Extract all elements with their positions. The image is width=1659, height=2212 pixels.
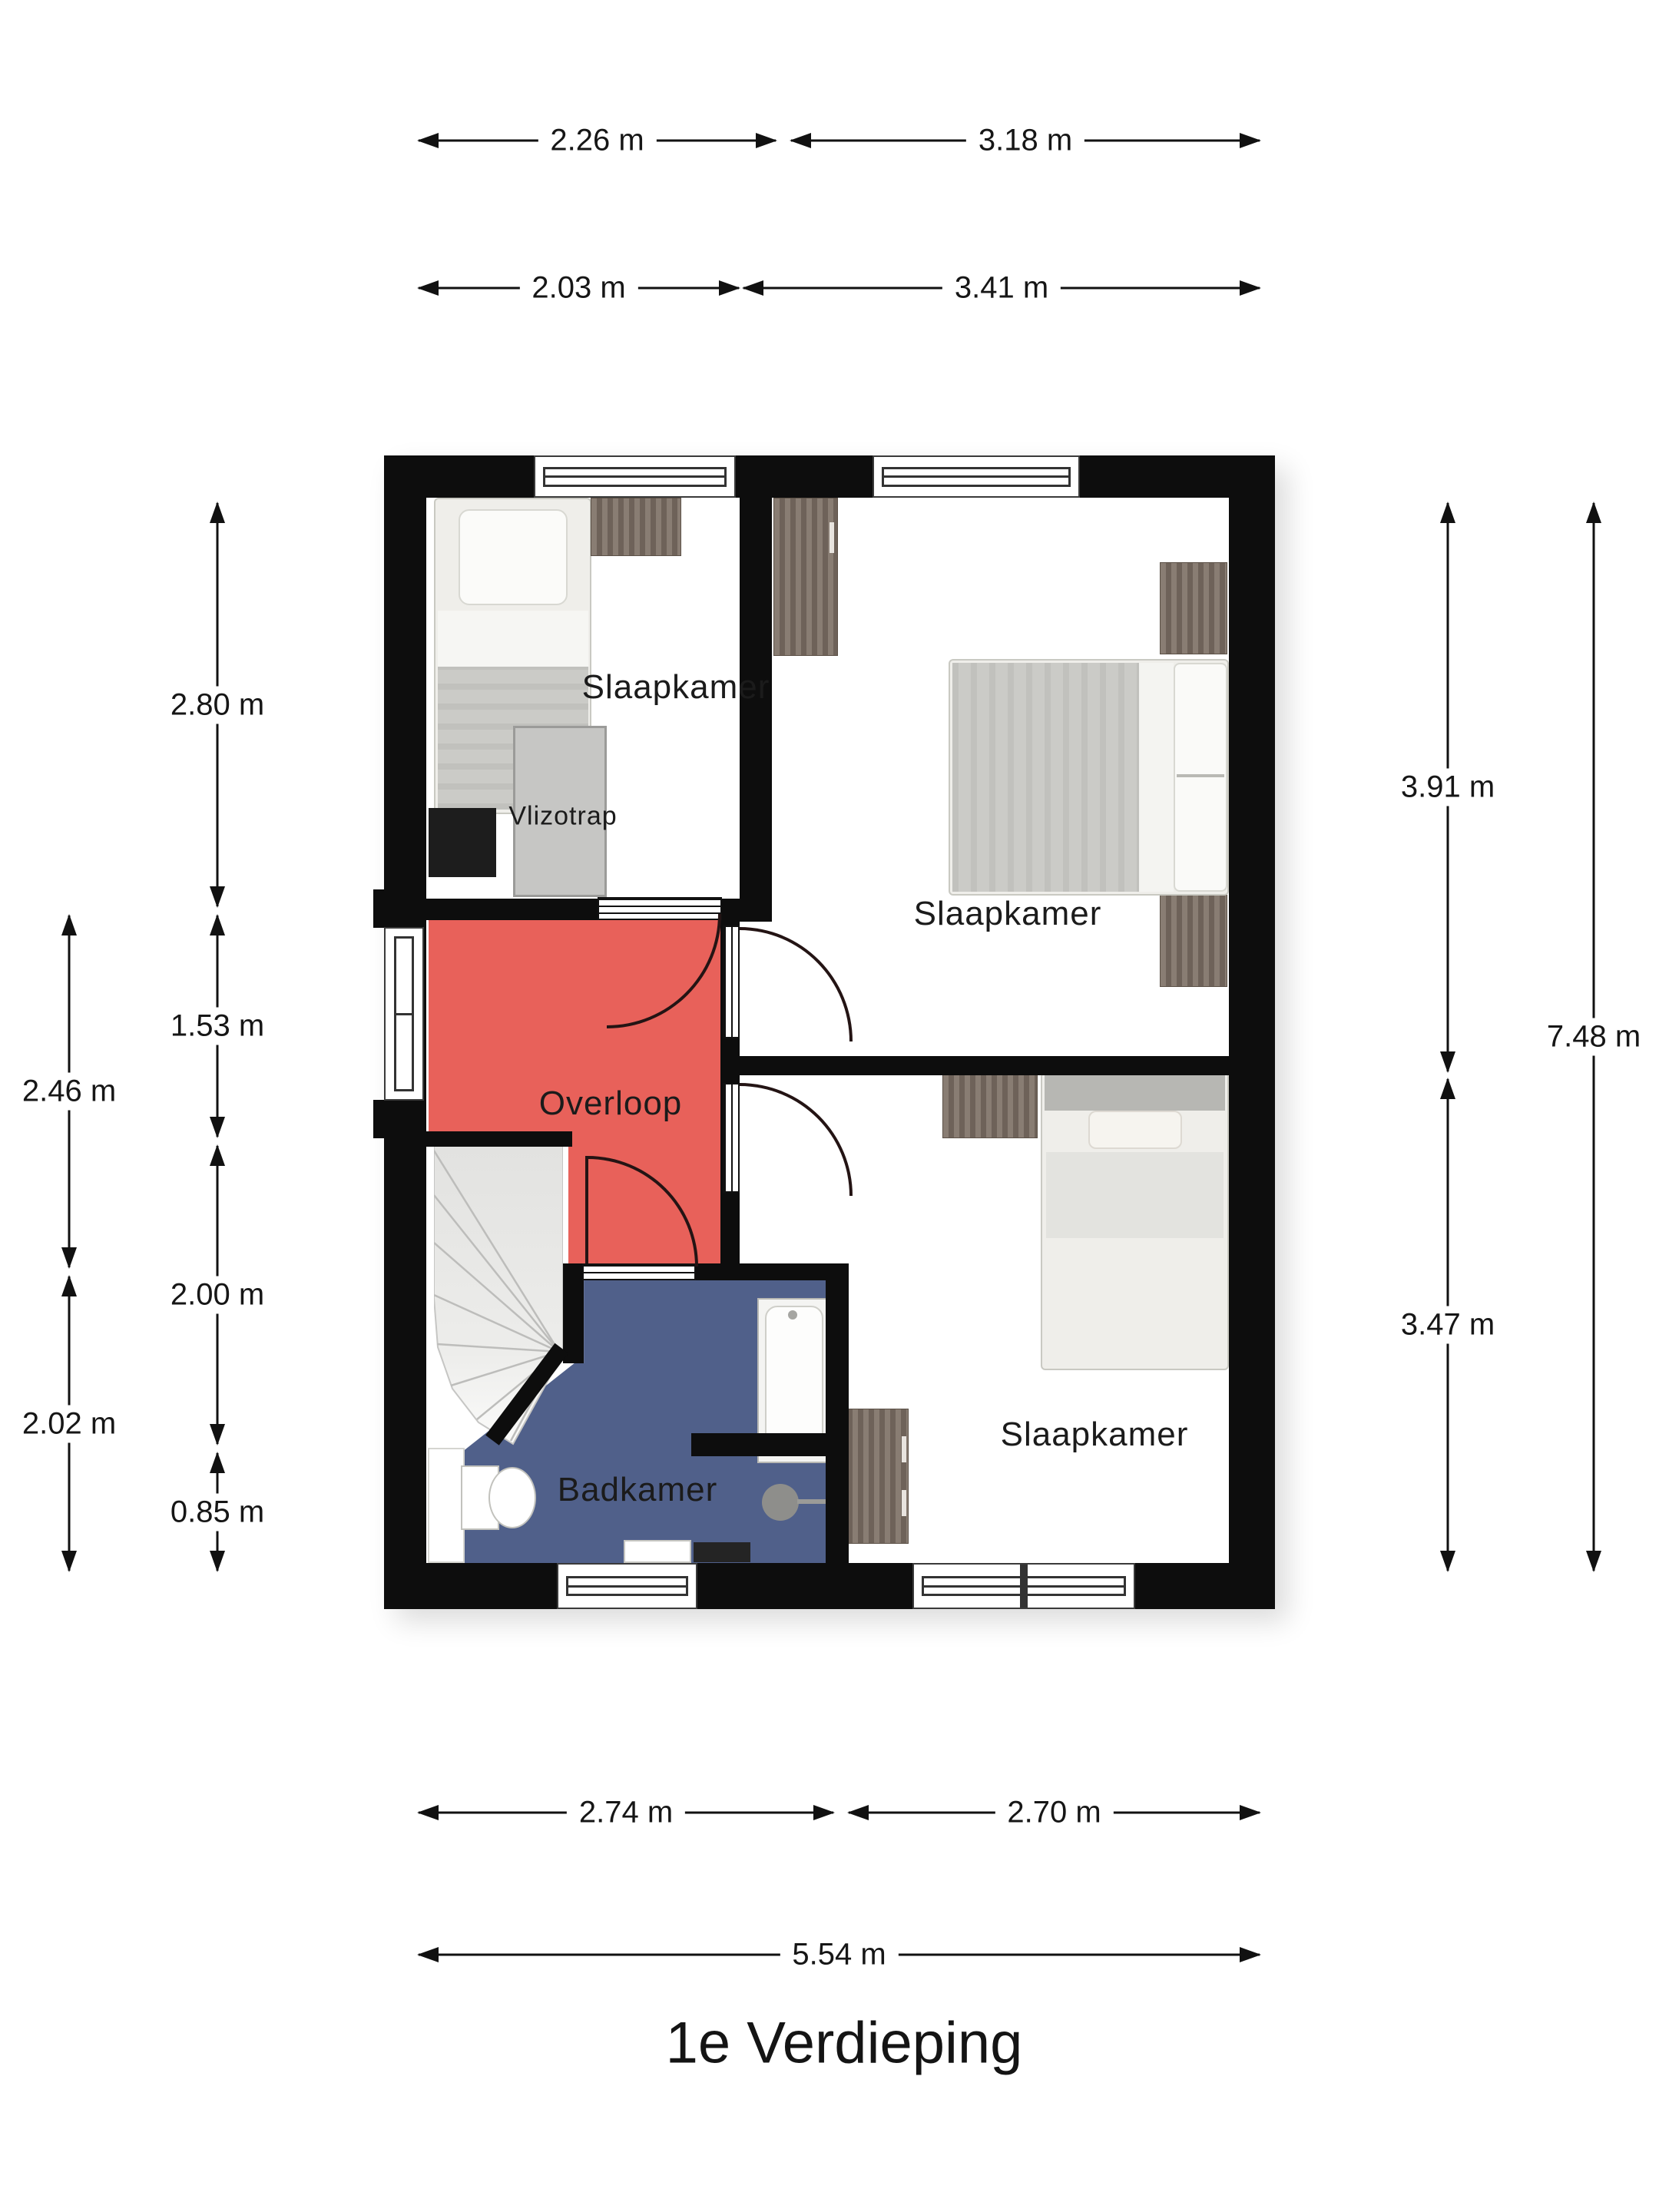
wardrobe [773, 498, 838, 656]
headboard-pillow-divider [1177, 774, 1224, 777]
dimension-right-347: 3.47 m [1440, 1079, 1455, 1571]
nightstand [1160, 562, 1227, 654]
window-bedroom3 [912, 1563, 1135, 1609]
bed-sheet [1046, 1152, 1224, 1238]
dimension-left-200: 2.00 m [210, 1146, 225, 1444]
sink [624, 1540, 691, 1563]
desk [942, 1074, 1038, 1138]
washbasin-counter [428, 1448, 465, 1563]
dimension-label: 2.02 m [10, 1405, 128, 1442]
radiator-handles [902, 1436, 906, 1462]
wall-stairs-top [426, 1131, 572, 1147]
dimension-label: 3.41 m [942, 270, 1061, 307]
dimension-right-391: 3.91 m [1440, 503, 1455, 1071]
window-bedroom1 [534, 455, 736, 498]
door-opening-bedroom3 [723, 1083, 740, 1193]
dimension-label: 2.26 m [538, 122, 656, 160]
toilet-bowl [488, 1467, 536, 1528]
dimension-label: 3.47 m [1389, 1306, 1507, 1344]
wall-between-right-bedrooms [740, 1056, 1229, 1075]
dimension-left-246: 2.46 m [61, 916, 77, 1267]
radiator-cabinet [841, 1409, 909, 1544]
floor-plan-page: Slaapkamer Slaapkamer Slaapkamer Overloo… [0, 0, 1659, 2212]
shower-arm [797, 1499, 826, 1504]
bathtub-faucet [788, 1310, 797, 1320]
bed-pillow [459, 509, 568, 605]
wall-window-nub-top [373, 889, 426, 928]
desk [591, 498, 681, 556]
room-label-bedroom1: Slaapkamer [582, 668, 770, 707]
dimension-label: 2.74 m [567, 1794, 685, 1832]
sink-cabinet-black [694, 1542, 750, 1562]
dimension-label: 5.54 m [780, 1936, 898, 1974]
dimension-top-318: 3.18 m [791, 133, 1260, 148]
wall-bathroom-right [826, 1263, 849, 1563]
dimension-label: 1.53 m [158, 1008, 276, 1045]
dresser-black [429, 808, 496, 877]
wall-bedroom1-landing [426, 899, 599, 920]
dimension-right-748: 7.48 m [1586, 503, 1601, 1571]
double-bed-sheet-band [1139, 663, 1174, 892]
room-label-loft-ladder: Vlizotrap [508, 802, 617, 832]
wall-exterior-top [384, 455, 1275, 498]
floor-title: 1e Verdieping [666, 2010, 1023, 2077]
room-label-bedroom2: Slaapkamer [914, 895, 1102, 933]
door-opening-bedroom2 [723, 926, 740, 1038]
bed-head-band [1045, 1075, 1225, 1111]
dimension-label: 7.48 m [1535, 1018, 1653, 1056]
wall-bath-stub [691, 1433, 826, 1456]
wall-corner-block [718, 899, 772, 922]
radiator-handles [902, 1490, 906, 1516]
room-label-landing: Overloop [539, 1084, 683, 1123]
room-label-bedroom3: Slaapkamer [1001, 1416, 1189, 1454]
dimension-top-203: 2.03 m [419, 280, 739, 296]
dimension-label: 2.70 m [995, 1794, 1113, 1832]
room-label-bathroom: Badkamer [558, 1471, 718, 1509]
dimension-label: 2.46 m [10, 1073, 128, 1111]
dimension-label: 2.00 m [158, 1277, 276, 1314]
dimension-label: 2.80 m [158, 686, 276, 724]
window-bedroom2 [873, 455, 1080, 498]
dimension-label: 3.91 m [1389, 769, 1507, 806]
dimension-left-153: 1.53 m [210, 916, 225, 1137]
wall-window-nub-bottom [373, 1100, 426, 1138]
dimension-left-202: 2.02 m [61, 1277, 77, 1571]
dimension-top-226: 2.26 m [419, 133, 776, 148]
wardrobe-knobs [829, 522, 834, 553]
bed-sheet [438, 611, 588, 668]
window-landing [384, 927, 424, 1101]
double-bed-blanket [952, 663, 1139, 892]
wall-exterior-right [1229, 455, 1275, 1609]
dimension-left-280: 2.80 m [210, 503, 225, 906]
wall-exterior-bottom [384, 1563, 1275, 1609]
dimension-bottom-270: 2.70 m [849, 1805, 1260, 1820]
door-leaf-bathroom [585, 1156, 588, 1263]
dimension-left-085: 0.85 m [210, 1453, 225, 1571]
dimension-label: 2.03 m [519, 270, 637, 307]
dimension-label: 0.85 m [158, 1493, 276, 1531]
dimension-label: 3.18 m [966, 122, 1084, 160]
shower-head [762, 1484, 799, 1521]
wall-stairs-right [563, 1263, 584, 1363]
dimension-top-341: 3.41 m [743, 280, 1260, 296]
nightstand [1160, 895, 1227, 987]
dimension-bottom-554: 5.54 m [419, 1947, 1260, 1962]
bed-pillow [1088, 1111, 1182, 1149]
staircase [434, 1144, 563, 1445]
dimension-bottom-274: 2.74 m [419, 1805, 833, 1820]
window-bathroom [557, 1563, 697, 1609]
double-bed-headboard [1174, 663, 1227, 892]
